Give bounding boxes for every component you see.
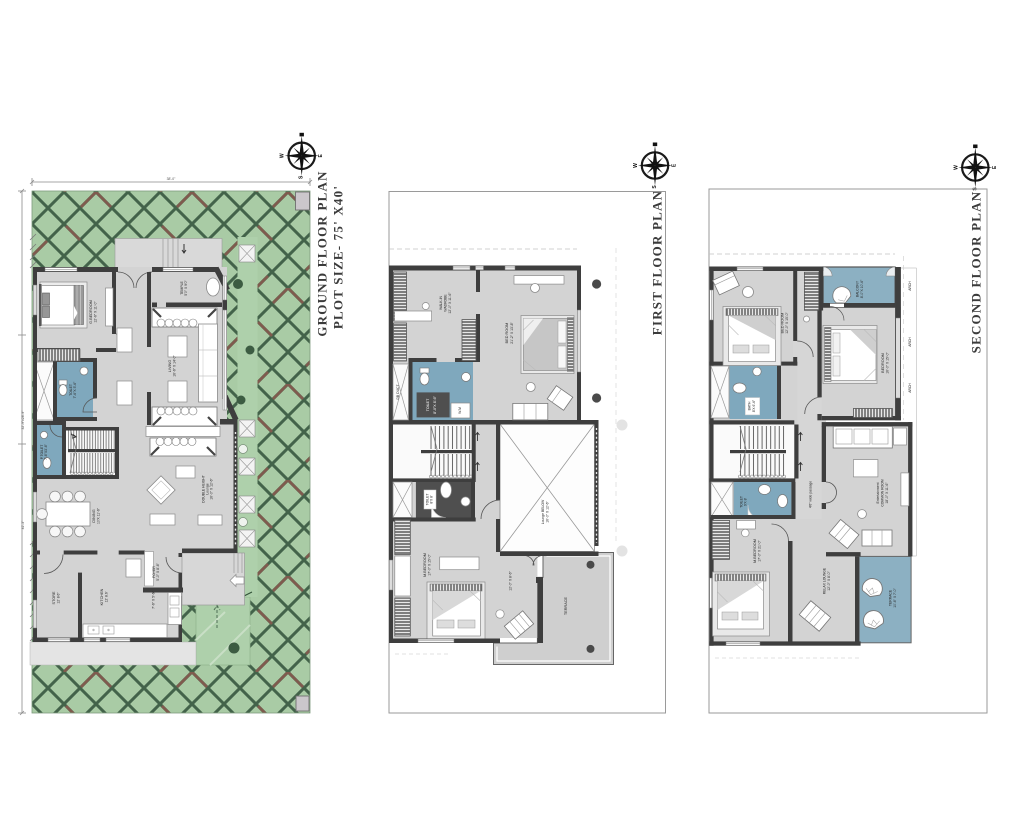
svg-text:COMMON ROOM: COMMON ROOM [881,479,885,506]
svg-text:TERRACE: TERRACE [564,596,568,615]
svg-text:16'-6" X 14'-0": 16'-6" X 14'-0" [173,354,177,376]
svg-text:WALK-IN: WALK-IN [439,295,443,310]
svg-text:12' 8 6": 12' 8 6" [57,592,61,604]
svg-text:5'0" X 9'0": 5'0" X 9'0" [184,280,188,296]
svg-text:12'-0" X 11'-6": 12'-0" X 11'-6" [448,292,452,314]
svg-text:ARCH: ARCH [908,281,912,291]
svg-text:PLOT SIZE- 75' X40': PLOT SIZE- 75' X40' [331,185,346,329]
svg-text:12' 8.6': 12' 8.6' [105,591,109,602]
svg-text:5'-0" X 8'-6": 5'-0" X 8'-6" [156,562,160,580]
svg-text:7'-6" X 5'-6": 7'-6" X 5'-6" [152,590,156,608]
svg-text:BED ROOM: BED ROOM [505,323,509,344]
svg-text:RELAX LOUNGE: RELAX LOUNGE [823,567,827,594]
svg-text:Lounge BELOW: Lounge BELOW [541,499,545,524]
svg-text:KITCHEN: KITCHEN [100,588,104,605]
svg-text:DB DUCT: DB DUCT [396,384,400,399]
svg-text:G.BEDROOM: G.BEDROOM [89,300,93,324]
svg-text:8'-0"X 10'-6": 8'-0"X 10'-6" [860,279,864,298]
svg-text:4'6" wide passage: 4'6" wide passage [809,481,813,508]
svg-text:12'-0" X 15'-0": 12'-0" X 15'-0" [785,311,789,333]
svg-text:8'X 8': 8'X 8' [430,495,434,504]
svg-text:12'-0" X 8'-0": 12'-0" X 8'-0" [827,570,831,590]
svg-text:Entertainment: Entertainment [876,482,880,503]
svg-text:16'-0" X 12'-6": 16'-0" X 12'-6" [210,477,214,499]
svg-text:W.M: W.M [458,407,462,414]
svg-text:GROUND FLOOR PLAN: GROUND FLOOR PLAN [315,170,330,336]
svg-text:16'-0" X 15'-0": 16'-0" X 15'-0" [886,351,890,373]
svg-text:M.BEDROOM: M.BEDROOM [753,539,757,563]
svg-text:WADROBE: WADROBE [444,294,448,312]
svg-text:42'-3": 42'-3" [21,520,25,529]
svg-text:17'-0" X 21'-0": 17'-0" X 21'-0" [758,539,762,561]
svg-text:12'-6" X 11'-0": 12'-6" X 11'-0" [94,301,98,323]
svg-text:17'-0" X 15'-0": 17'-0" X 15'-0" [428,553,432,575]
svg-text:STORE: STORE [52,591,56,604]
svg-text:9'X 8': 9'X 8' [744,498,748,507]
svg-text:21'-2" X 13'-8": 21'-2" X 13'-8" [510,321,514,343]
svg-text:TERRACE: TERRACE [889,589,893,606]
svg-text:BEDROOM: BEDROOM [881,353,885,373]
svg-text:8'-0"X 8'-6": 8'-0"X 8'-6" [433,395,437,413]
svg-text:8'X 6'-6": 8'X 6'-6" [752,399,756,412]
svg-text:ARCH: ARCH [908,383,912,393]
svg-text:7'-6"X3'-6": 7'-6"X3'-6" [44,443,48,460]
svg-text:ARCH: ARCH [908,337,912,347]
svg-text:16'-0" X 12'-6": 16'-0" X 12'-6" [546,500,550,522]
svg-text:DINING: DINING [92,509,96,522]
svg-text:M.BEDROOM: M.BEDROOM [423,553,427,577]
svg-text:38'-0": 38'-0" [167,177,176,181]
svg-text:32'-9"x28'-9": 32'-9"x28'-9" [21,410,25,430]
svg-text:TOILET: TOILET [426,398,430,411]
svg-text:18'-0" X 11'-6": 18'-0" X 11'-6" [885,482,889,504]
svg-text:FIRST FLOOR PLAN: FIRST FLOOR PLAN [650,190,665,335]
svg-text:7'-6"X 5'-6": 7'-6"X 5'-6" [73,381,77,399]
svg-text:10'X 11'-6": 10'X 11'-6" [97,507,101,524]
svg-text:10'-6" X 7'-0": 10'-6" X 7'-0" [893,587,897,607]
svg-text:BATH: BATH [748,401,752,410]
svg-text:BALCONY: BALCONY [856,280,860,297]
svg-text:BED ROOM: BED ROOM [781,313,785,334]
svg-text:LIVING: LIVING [168,360,172,372]
svg-text:12'-0" X 8'-6": 12'-0" X 8'-6" [508,570,512,590]
svg-text:SECOND FLOOR PLAN: SECOND FLOOR PLAN [969,191,984,354]
